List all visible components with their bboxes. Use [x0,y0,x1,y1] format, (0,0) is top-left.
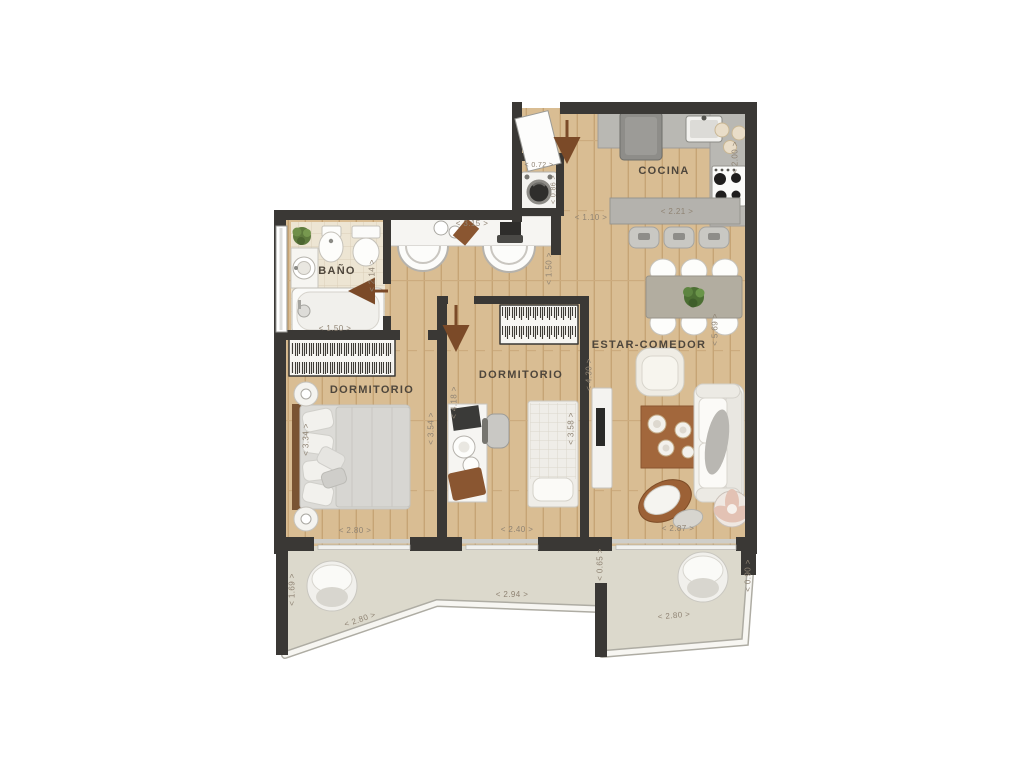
washing-machine-icon [521,172,557,210]
wardrobe-icon [289,339,395,376]
double-bed-icon [292,404,410,510]
floor-plan-drawing [0,0,1024,768]
sofa-icon [694,384,744,502]
bidet-icon [319,226,343,262]
washbasin-counter-icon [291,248,318,288]
tv-unit-icon [592,388,612,488]
egg-chair-icon [307,561,357,611]
floor-plan-page: BAÑO DORMITORIO DORMITORIO COCINA ESTAR-… [0,0,1024,768]
armchair-icon [636,348,684,396]
single-bed-icon [528,401,578,507]
fridge-icon [620,112,662,160]
toilet-icon [352,226,380,266]
desk-icon [447,404,487,502]
vanity-counter-icon [390,216,553,246]
bar-stool-icon [629,227,729,248]
kitchen-island-icon [610,198,740,224]
egg-chair-icon [678,552,728,602]
wardrobe-icon [500,305,578,344]
bathtub-icon [292,288,384,334]
desk-chair-icon [482,414,509,448]
